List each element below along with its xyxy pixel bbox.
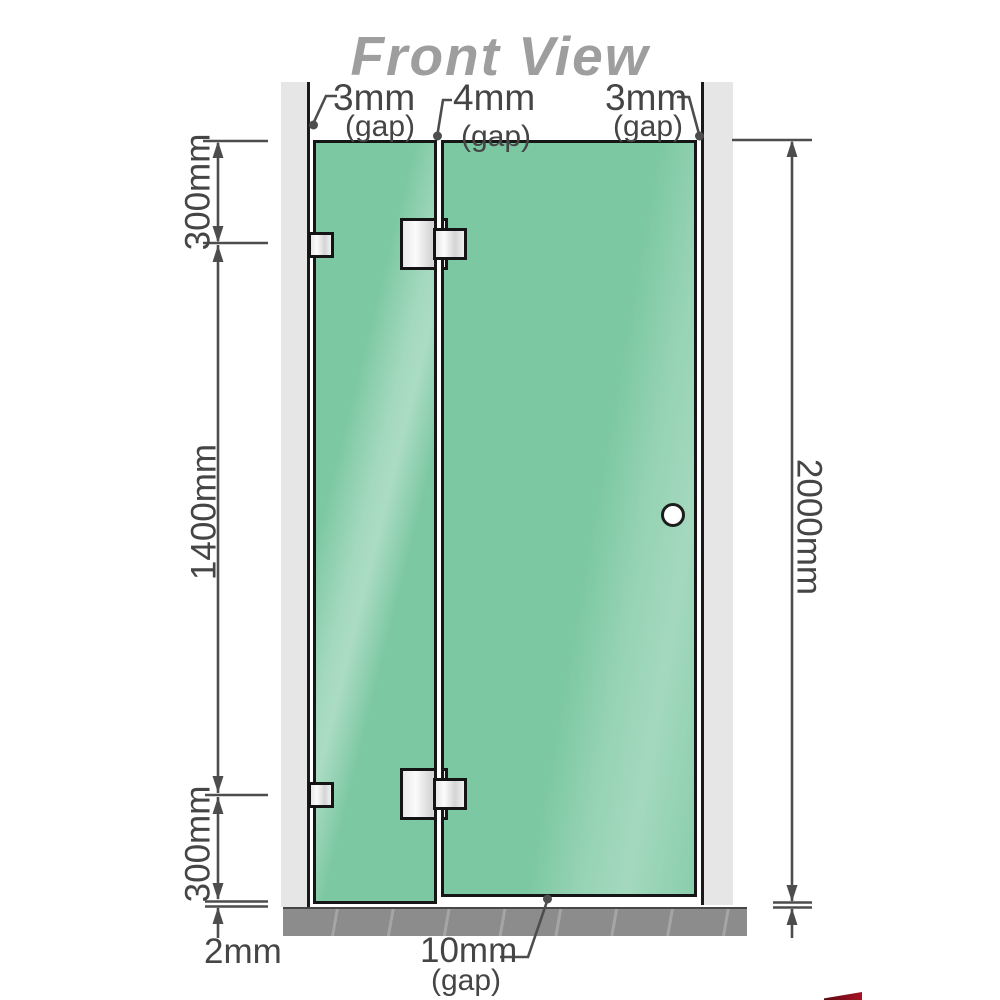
leader-gap-middle bbox=[438, 100, 453, 134]
gap-label-left: 3mm (gap) bbox=[333, 79, 415, 142]
gap-label-right-suffix: (gap) bbox=[613, 112, 687, 142]
gap-label-bottom-value: 10mm bbox=[420, 933, 512, 968]
gap-label-middle-value: 4mm bbox=[453, 79, 535, 116]
gap-label-left-suffix: (gap) bbox=[345, 112, 415, 142]
wall-bracket-top-icon bbox=[308, 232, 334, 258]
gap-label-middle: 4mm (gap) bbox=[453, 79, 535, 152]
front-view-diagram: Front View bbox=[0, 0, 1000, 1000]
door-glass-panel bbox=[441, 140, 697, 897]
door-hinge-bottom-tab-icon bbox=[433, 778, 467, 810]
right-wall bbox=[701, 82, 733, 905]
gap-label-middle-suffix: (gap) bbox=[461, 122, 535, 152]
door-hinge-top-tab-icon bbox=[433, 228, 467, 260]
dim-label-top-left: 300mm bbox=[181, 134, 216, 251]
gap-label-bottom-suffix: (gap) bbox=[420, 966, 512, 996]
brand-logo-icon bbox=[824, 992, 862, 1000]
gap-label-right: 3mm (gap) bbox=[605, 79, 687, 142]
wall-bracket-bottom-icon bbox=[308, 782, 334, 808]
dim-label-floor-gap: 2mm bbox=[204, 934, 282, 969]
dim-label-middle-left: 1400mm bbox=[187, 444, 222, 580]
dim-label-bottom-left: 300mm bbox=[181, 786, 216, 903]
left-wall bbox=[281, 82, 310, 907]
gap-label-bottom: 10mm (gap) bbox=[420, 933, 512, 996]
door-knob-icon bbox=[661, 503, 685, 527]
dim-label-total-height: 2000mm bbox=[792, 459, 827, 595]
